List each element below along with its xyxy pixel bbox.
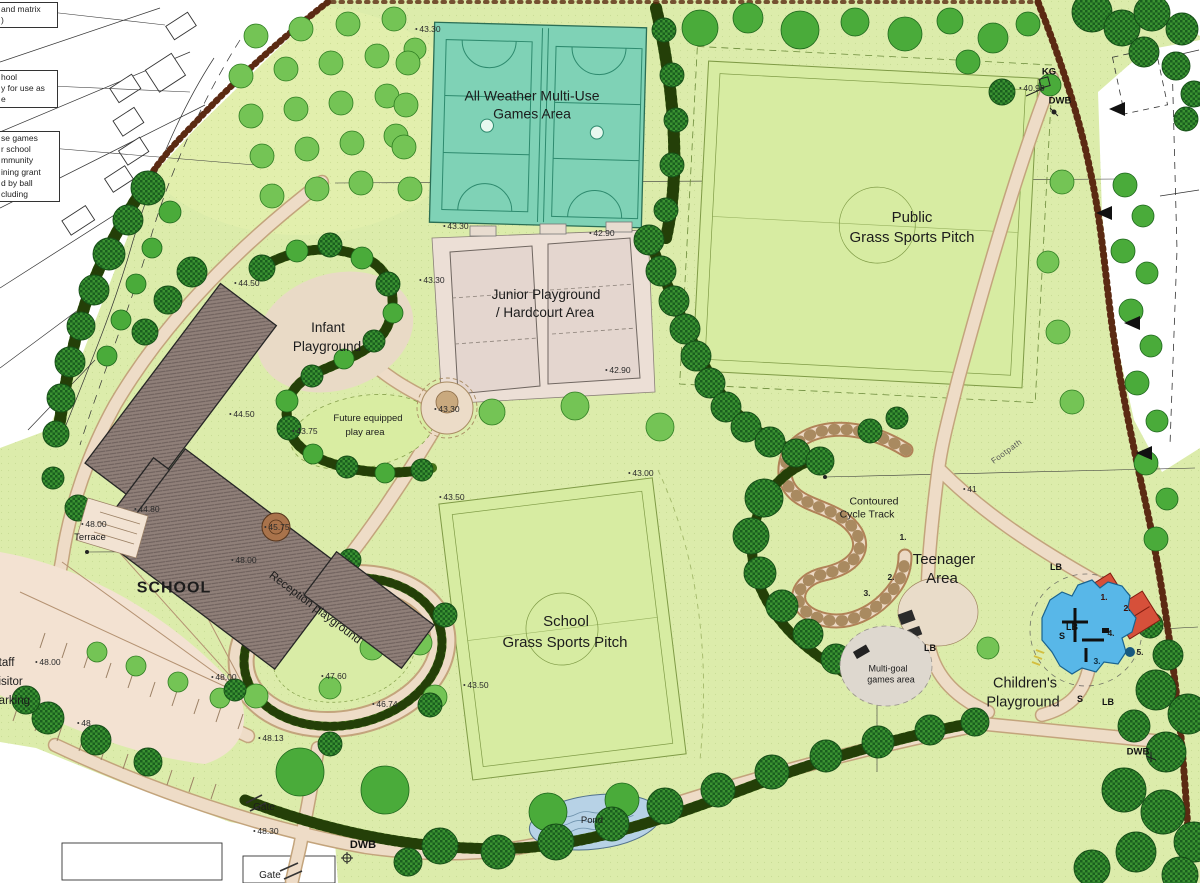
play-item-3: 3. <box>1093 656 1100 666</box>
track-point-3: 3. <box>863 588 870 598</box>
level-41: 41 <box>963 484 976 494</box>
parking-label-line2: Visitor <box>0 673 30 692</box>
cycle-track-label-line1: Contoured <box>849 496 898 507</box>
level-4330-muga-nw: 43.30 <box>415 24 440 34</box>
school-pitch-label-line2: Grass Sports Pitch <box>502 635 627 651</box>
parking-label-line3: Parking <box>0 692 30 711</box>
parking-label-line1: Staff <box>0 654 30 673</box>
parking-label: Staff Visitor Parking <box>0 654 30 711</box>
public-pitch-label-line1: Public <box>892 210 933 226</box>
level-4290-junior-se: 42.90 <box>605 365 630 375</box>
future-play-label-line2: play area <box>345 428 384 438</box>
level-4450-south: 44.50 <box>229 409 254 419</box>
note-box-2: hool y for use as e <box>0 70 58 108</box>
track-point-2: 2. <box>887 572 894 582</box>
track-point-1: 1. <box>899 532 906 542</box>
lb-marker-1: LB <box>1050 562 1062 572</box>
note3-line1: se games <box>1 133 55 144</box>
infant-label-line2: Playground <box>293 340 361 354</box>
kg-marker: KG <box>1042 67 1056 78</box>
note-box-3: se games r school mmunity ining grant d … <box>0 131 60 202</box>
lb-marker-3: LB <box>1102 697 1114 707</box>
level-48-aisle: 48 <box>77 718 90 728</box>
public-pitch-label-line2: Grass Sports Pitch <box>849 230 974 246</box>
future-play-label-line1: Future equipped <box>333 414 402 424</box>
note3-line5: d by ball <box>1 178 55 189</box>
infant-label-line1: Infant <box>311 321 345 335</box>
s-marker-2: S <box>1077 694 1083 704</box>
childrens-playground-label-line1: Children's <box>993 676 1057 691</box>
level-4830: 48.30 <box>253 826 278 836</box>
lb-marker-2: LB <box>1066 622 1078 632</box>
dwb-marker-bottom: DWB <box>350 839 376 851</box>
childrens-playground-label-line2: Playground <box>986 695 1059 710</box>
level-4350-sw: 43.50 <box>463 680 488 690</box>
muga-courts <box>429 22 646 227</box>
level-4090: 40.90 <box>1019 83 1044 93</box>
note1-line2: ) <box>1 15 53 26</box>
dwb-marker-right: DWB <box>1127 747 1150 758</box>
s-marker-1: S <box>1059 631 1065 641</box>
level-4480: 44.80 <box>134 504 159 514</box>
level-4330-muga-sw: 43.30 <box>443 221 468 231</box>
terrace-label: Terrace <box>74 533 106 543</box>
note1-line1: and matrix <box>1 4 53 15</box>
site-plan: All Weather Multi-Use Games Area Junior … <box>0 0 1200 883</box>
note3-line4: ining grant <box>1 167 55 178</box>
level-4290-muga-se: 42.90 <box>589 228 614 238</box>
note2-line3: e <box>1 94 53 105</box>
school-pitch-label-line1: School <box>543 614 589 630</box>
pond-label: Pond <box>581 816 603 826</box>
multigoal-label-line2: games area <box>867 675 915 684</box>
level-4813: 48.13 <box>258 733 283 743</box>
gate-label-north: Gate <box>253 803 275 814</box>
play-item-2: 2. <box>1123 603 1130 613</box>
note3-line3: mmunity <box>1 155 55 166</box>
play-item-1: 1. <box>1100 592 1107 602</box>
level-4375: 43.75 <box>292 426 317 436</box>
level-4300: 43.00 <box>628 468 653 478</box>
level-4350-nw: 43.50 <box>439 492 464 502</box>
level-4800-parking: 48.00 <box>35 657 60 667</box>
level-4800-south: 48.00 <box>211 672 236 682</box>
level-4760: 47.60 <box>321 671 346 681</box>
teenager-area-label-line1: Teenager <box>913 552 976 568</box>
junior-label-line1: Junior Playground <box>492 288 601 302</box>
junior-label-line2: / Hardcourt Area <box>496 306 594 320</box>
level-4800-mid: 48.00 <box>231 555 256 565</box>
cycle-track-label-line2: Cycle Track <box>840 509 895 520</box>
level-4330-junior-w: 43.30 <box>419 275 444 285</box>
level-4674: 46.74 <box>372 699 397 709</box>
level-4800-terrace: 48.00 <box>81 519 106 529</box>
note3-line6: cluding <box>1 189 55 200</box>
muga-label-line1: All Weather Multi-Use <box>464 89 599 104</box>
note2-line2: y for use as <box>1 83 53 94</box>
level-4330-circle: 43.30 <box>434 404 459 414</box>
note-box-1: and matrix ) <box>0 2 58 28</box>
gate-label-south: Gate <box>259 871 281 882</box>
school-label: SCHOOL <box>137 581 211 598</box>
multigoal-label-line1: Multi-goal <box>868 664 907 673</box>
play-item-5: 5. <box>1136 647 1143 657</box>
note3-line2: r school <box>1 144 55 155</box>
muga-label-line2: Games Area <box>493 107 571 122</box>
level-4575-mound: 45.75 <box>264 522 289 532</box>
note2-line1: hool <box>1 72 53 83</box>
play-item-4: 4. <box>1107 628 1114 638</box>
dwb-marker-top: DWB <box>1049 96 1072 107</box>
level-4450-north: 44.50 <box>234 278 259 288</box>
teenager-area-label-line2: Area <box>926 571 958 587</box>
lb-marker-4: LB <box>924 643 936 653</box>
